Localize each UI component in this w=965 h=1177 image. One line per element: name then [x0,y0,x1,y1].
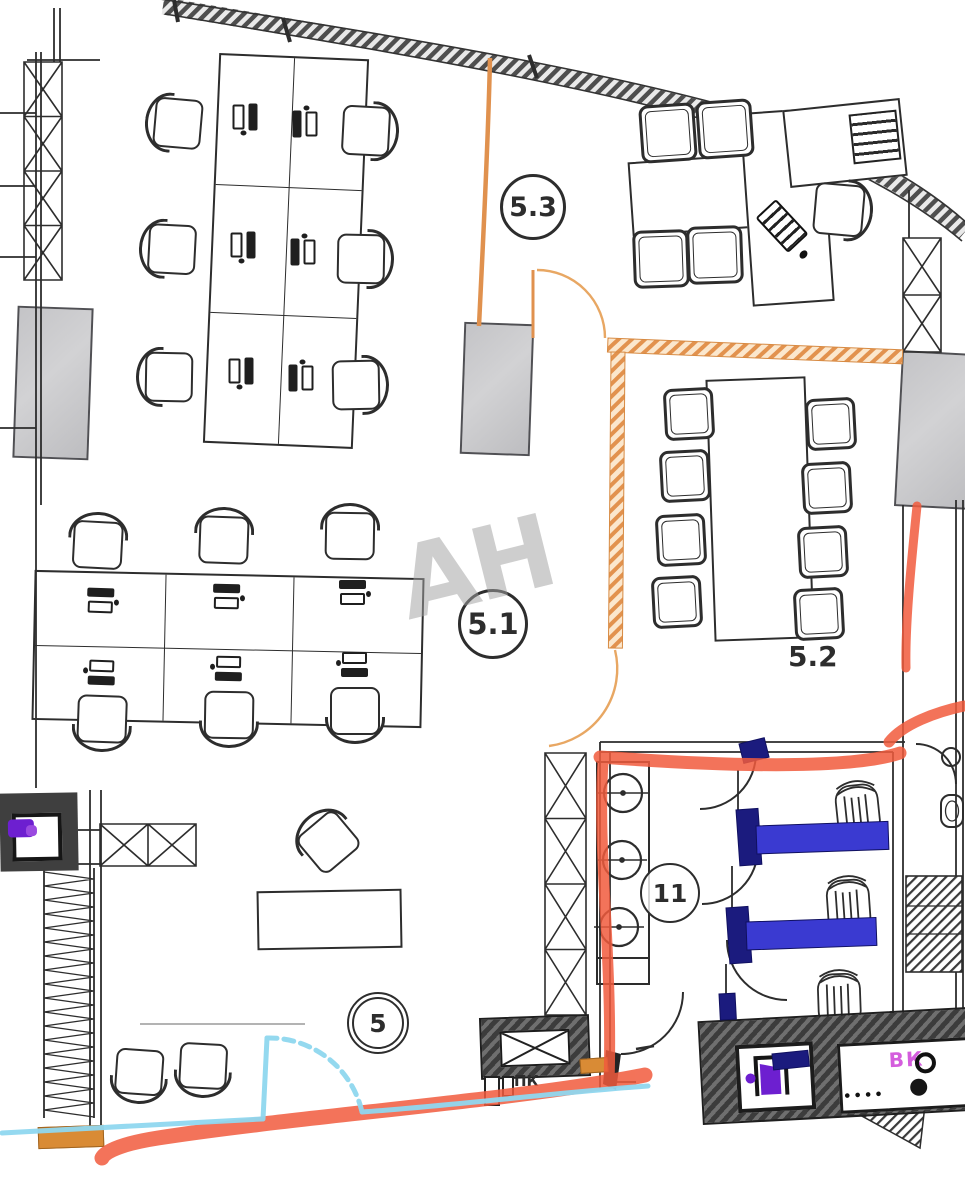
floor-plan: ПК ВК •••• 5.3 5.1 5.2 11 5 АН [0,0,965,1177]
blue-partition-markup [719,738,889,1070]
